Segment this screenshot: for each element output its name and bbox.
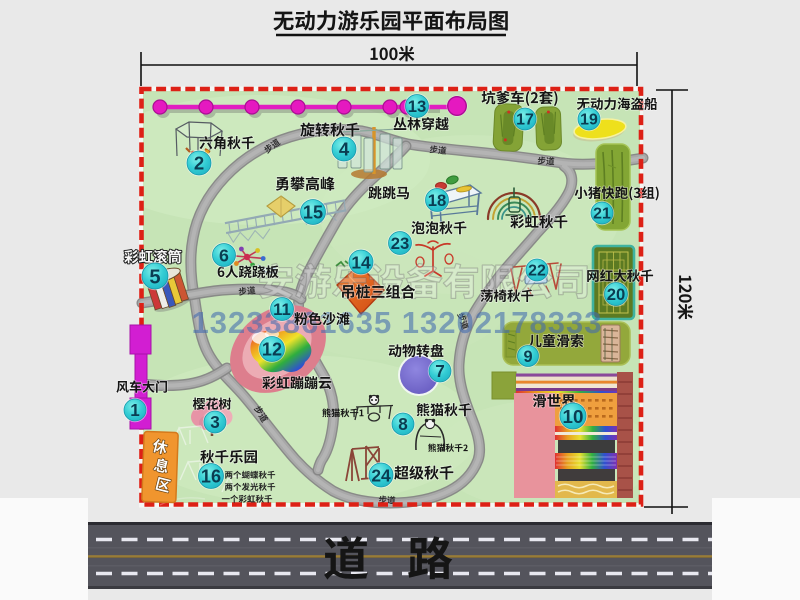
svg-text:12: 12: [262, 340, 282, 360]
svg-text:18: 18: [428, 191, 447, 210]
svg-text:2: 2: [194, 153, 204, 174]
svg-text:1: 1: [130, 401, 140, 420]
svg-text:4: 4: [339, 139, 350, 160]
svg-text:8: 8: [398, 415, 408, 434]
svg-text:9: 9: [523, 348, 532, 366]
svg-text:22: 22: [528, 263, 546, 280]
svg-text:5: 5: [149, 266, 160, 288]
svg-text:13: 13: [408, 97, 427, 116]
svg-text:21: 21: [593, 206, 611, 223]
svg-text:23: 23: [391, 234, 410, 253]
svg-text:16: 16: [201, 467, 221, 487]
svg-text:10: 10: [563, 406, 584, 427]
svg-text:17: 17: [516, 112, 534, 129]
svg-text:19: 19: [580, 112, 598, 129]
svg-text:14: 14: [351, 252, 371, 272]
svg-text:20: 20: [607, 285, 626, 304]
svg-text:13233861635 13202178333: 13233861635 13202178333: [192, 305, 603, 340]
svg-text:15: 15: [303, 203, 323, 223]
svg-text:24: 24: [371, 465, 391, 485]
svg-text:11: 11: [273, 300, 291, 319]
svg-text:7: 7: [435, 362, 445, 381]
svg-text:3: 3: [210, 413, 220, 432]
svg-text:6: 6: [219, 245, 229, 265]
